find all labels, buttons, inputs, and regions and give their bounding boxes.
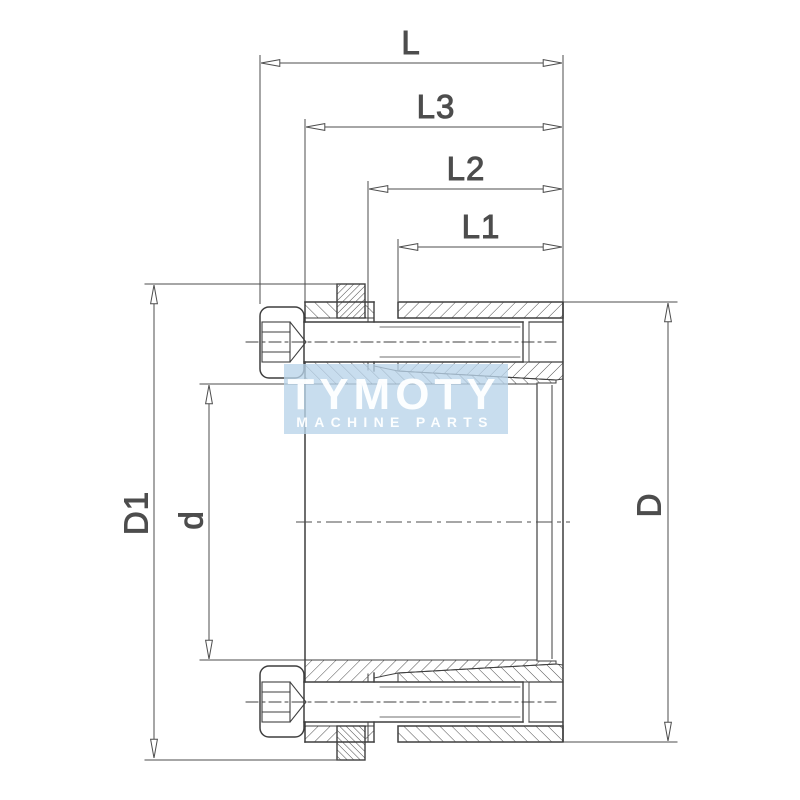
locking-assembly-drawing: L L3 L2 L1 D1 d D TYMOTY MACHINE xyxy=(0,0,800,800)
watermark: TYMOTY MACHINE PARTS xyxy=(284,364,508,434)
dimension-L2: L2 xyxy=(369,150,562,189)
dimension-d-label: d xyxy=(173,510,210,529)
dimension-D: D xyxy=(631,303,668,741)
assembly-bottom-half-section xyxy=(145,660,677,760)
dimension-L3: L3 xyxy=(306,88,562,127)
technical-drawing-page: L L3 L2 L1 D1 d D TYMOTY MACHINE xyxy=(0,0,800,800)
watermark-brand: TYMOTY xyxy=(287,370,500,419)
flange-rim-block xyxy=(337,284,365,318)
outer-ring-top-section xyxy=(398,302,563,318)
dimension-L1-label: L1 xyxy=(462,208,501,245)
dimension-D1-label: D1 xyxy=(118,491,155,535)
dimension-L-label: L xyxy=(401,24,420,61)
dimension-L1: L1 xyxy=(399,208,562,247)
dimension-L2-label: L2 xyxy=(447,150,486,187)
dimension-d: d xyxy=(173,385,210,659)
dimension-D-label: D xyxy=(631,493,668,518)
watermark-tagline: MACHINE PARTS xyxy=(296,414,494,430)
dimension-L: L xyxy=(261,24,562,63)
dimension-D1: D1 xyxy=(118,285,155,758)
dimension-L3-label: L3 xyxy=(417,88,456,125)
